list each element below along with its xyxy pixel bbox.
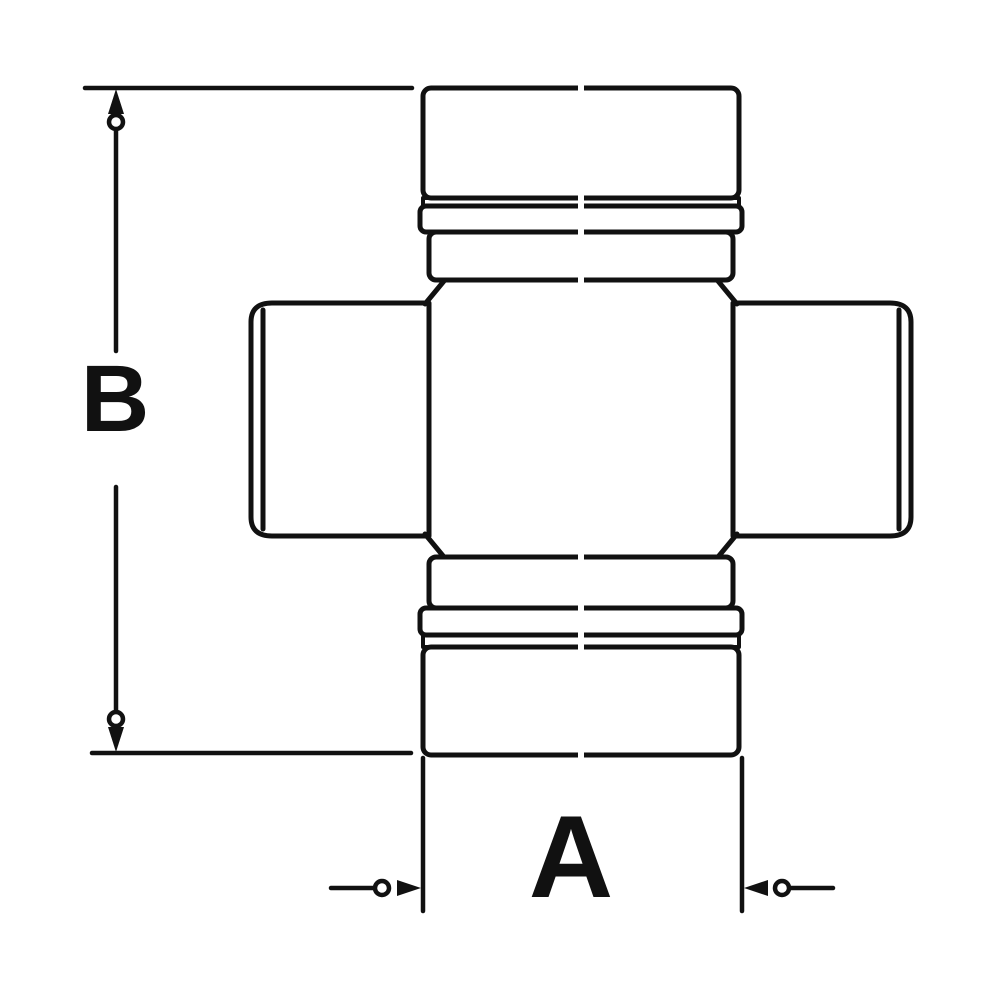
- dimension-label-a: A: [529, 791, 614, 922]
- dim-a-arrowhead-right: [397, 880, 421, 896]
- dim-b-arrow-circle-bottom: [109, 712, 123, 726]
- dim-b-arrowhead-up: [108, 89, 124, 114]
- dim-a-arrowhead-left: [744, 880, 768, 896]
- drawing-canvas: B A: [0, 0, 1000, 1000]
- left-bearing-cup: [251, 303, 429, 536]
- dim-a-arrow-circle-right: [775, 881, 789, 895]
- u-joint-technical-drawing: B A: [0, 0, 1000, 1000]
- dim-b-arrowhead-down: [108, 727, 124, 752]
- dim-a-arrow-circle-left: [375, 881, 389, 895]
- dim-b-arrow-circle-top: [109, 115, 123, 129]
- dimension-label-b: B: [81, 346, 150, 452]
- chamfer-diagonal-bottom-left: [425, 534, 444, 557]
- centerline-gap-top: [578, 84, 584, 286]
- centerline-gap-bottom: [578, 552, 584, 760]
- chamfer-diagonal-top-left: [425, 281, 444, 304]
- right-bearing-cup: [733, 303, 911, 536]
- chamfer-diagonal-bottom-right: [718, 534, 737, 557]
- chamfer-diagonal-top-right: [718, 281, 737, 304]
